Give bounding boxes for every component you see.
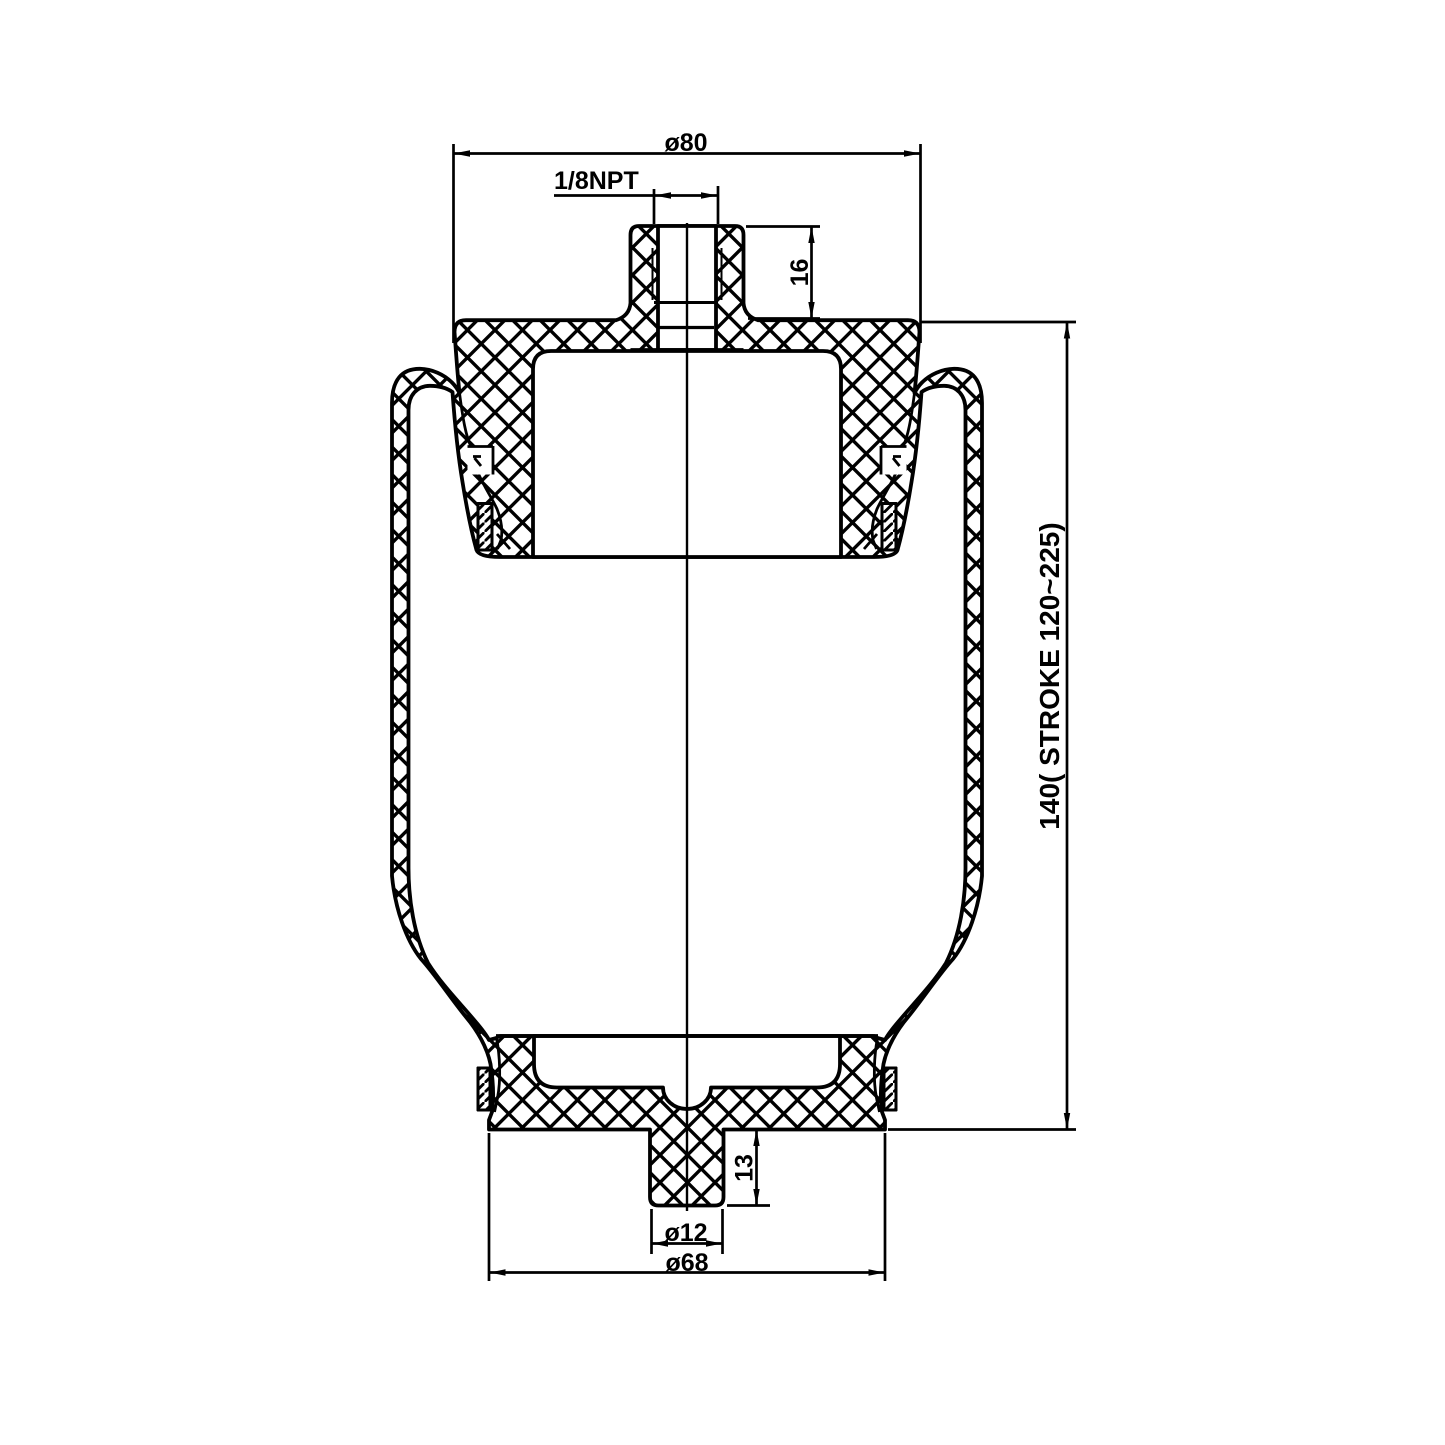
svg-text:ø80: ø80	[664, 129, 707, 157]
svg-text:16: 16	[786, 259, 814, 287]
svg-text:13: 13	[731, 1154, 759, 1182]
svg-text:ø12: ø12	[664, 1219, 707, 1247]
svg-text:ø68: ø68	[665, 1249, 708, 1277]
svg-text:1/8NPT: 1/8NPT	[554, 167, 639, 195]
svg-text:140( STROKE 120~225): 140( STROKE 120~225)	[1034, 522, 1065, 829]
